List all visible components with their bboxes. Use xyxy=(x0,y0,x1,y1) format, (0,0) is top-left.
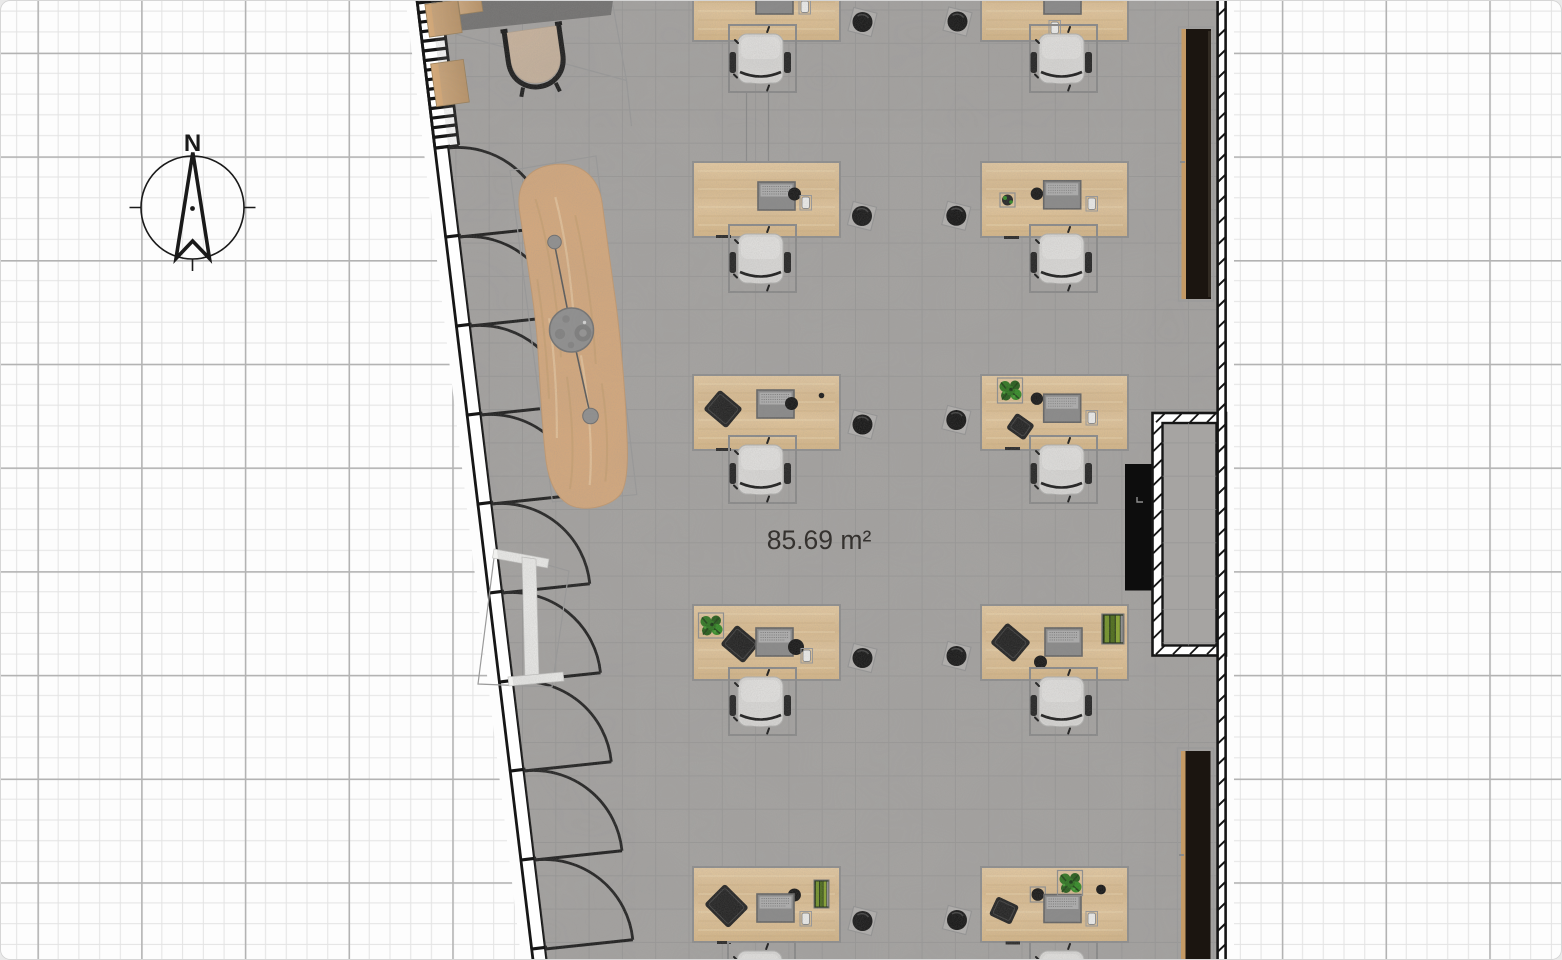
svg-text:N: N xyxy=(184,130,201,157)
svg-text:85.69 m²: 85.69 m² xyxy=(767,525,872,555)
